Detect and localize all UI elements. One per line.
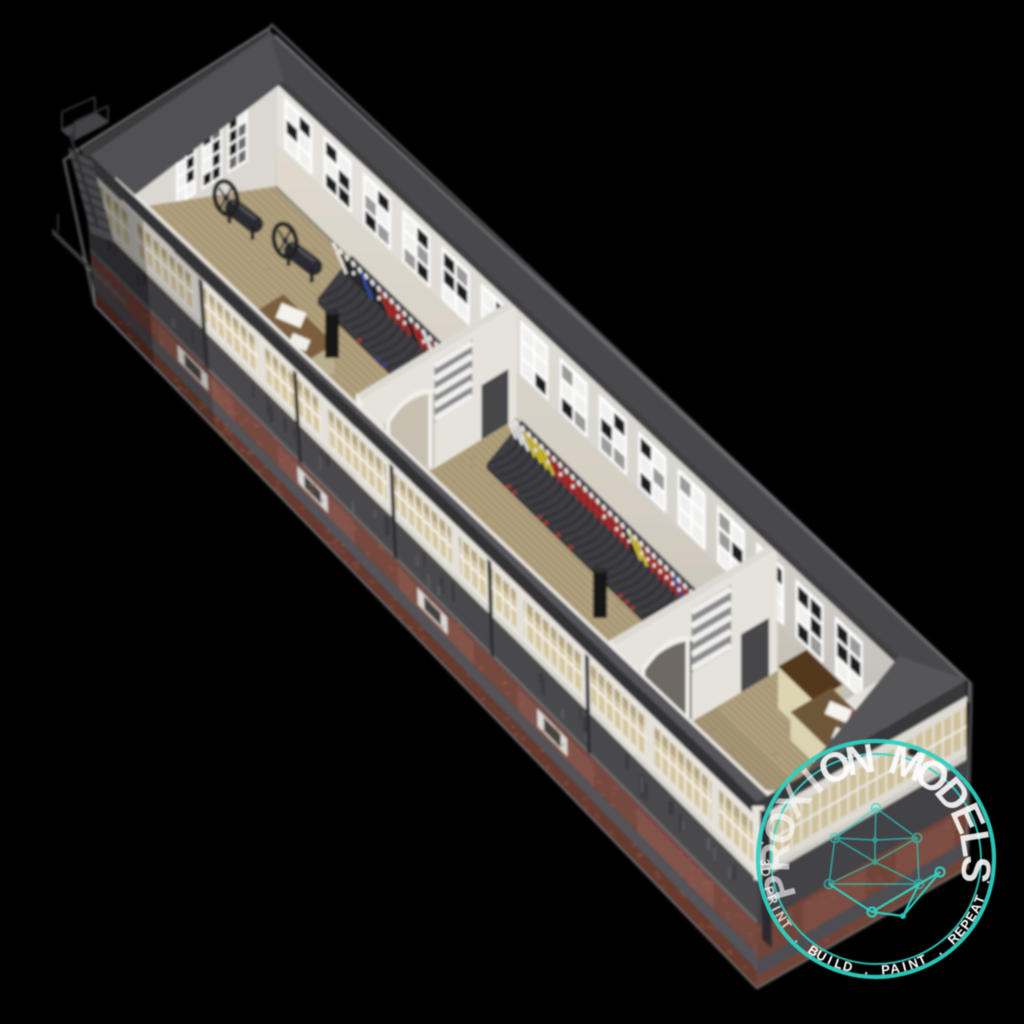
svg-text:S: S xyxy=(952,854,1001,886)
